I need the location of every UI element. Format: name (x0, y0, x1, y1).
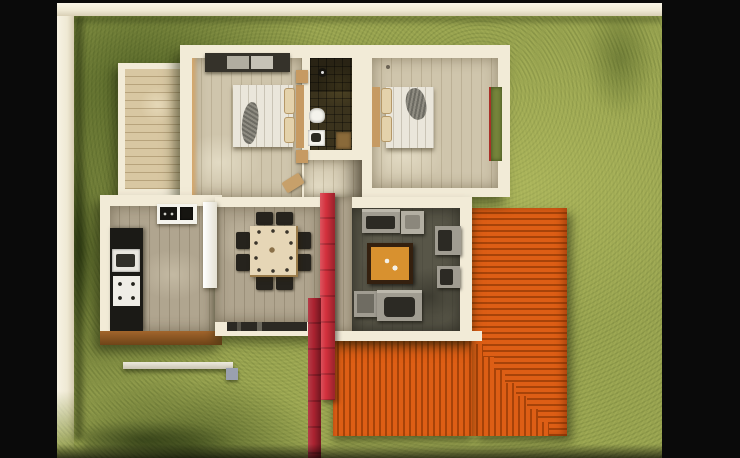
sink-side-hob (180, 207, 193, 220)
roof-steps (472, 208, 567, 436)
dining-chair (236, 232, 250, 249)
wood-deck (118, 63, 180, 195)
roof-terrace-right (472, 208, 567, 436)
pillow (284, 88, 295, 114)
dining-room (215, 197, 320, 336)
bath-vanity (336, 132, 351, 149)
refrigerator (203, 202, 217, 288)
bedroom-1-accent-wall (192, 58, 198, 197)
bedside-table (296, 70, 308, 83)
fence-shadow-top (74, 16, 662, 22)
bottom-shadow (57, 444, 662, 458)
dining-chair (276, 276, 293, 290)
pillow (284, 117, 295, 143)
sofa (362, 209, 400, 233)
hallway-floor (304, 160, 362, 197)
wardrobe (205, 53, 290, 72)
shower (310, 58, 352, 92)
low-garden-wall (123, 362, 233, 369)
shower-head-icon (318, 68, 327, 77)
wardrobe-door (251, 56, 273, 69)
kitchen-deck-edge (100, 331, 222, 345)
garden-window (489, 87, 502, 161)
door-knob (386, 65, 390, 69)
toilet (309, 108, 325, 123)
floor-plan-render (0, 0, 740, 458)
house-top-block (180, 45, 510, 197)
sofa (377, 290, 422, 321)
dining-chair (297, 254, 311, 271)
dining-chair (297, 232, 311, 249)
bed-2-headboard (372, 87, 380, 147)
side-table (354, 291, 377, 317)
bed-1-headboard (296, 85, 304, 148)
dining-chair (276, 212, 293, 225)
sink-unit (157, 204, 197, 224)
armchair (401, 211, 424, 234)
washbasin (308, 130, 325, 146)
bedside-table (296, 150, 308, 163)
pillow (381, 116, 392, 142)
sideboard (227, 322, 307, 331)
pillow (381, 88, 392, 114)
armchair (435, 226, 461, 255)
wall-extension (472, 331, 482, 341)
perimeter-wall-left (57, 16, 74, 452)
dining-chair (256, 276, 273, 290)
entry-pad (226, 368, 238, 380)
shrub-shadow (585, 18, 655, 118)
perimeter-wall-top (57, 3, 662, 16)
red-feature-wall-lower (308, 298, 321, 458)
dining-chair (256, 212, 273, 225)
armchair (437, 266, 460, 288)
coffee-table (367, 243, 413, 284)
wardrobe-door (227, 56, 249, 69)
roof-terrace-bottom (333, 341, 472, 436)
hall-strip-floor (335, 197, 352, 331)
dining-table (250, 226, 298, 277)
dining-chair (236, 254, 250, 271)
cooktop-burners (113, 276, 140, 306)
sink-bowls (160, 207, 177, 220)
oven (112, 249, 140, 272)
living-room (335, 197, 472, 341)
red-feature-wall (320, 193, 335, 400)
